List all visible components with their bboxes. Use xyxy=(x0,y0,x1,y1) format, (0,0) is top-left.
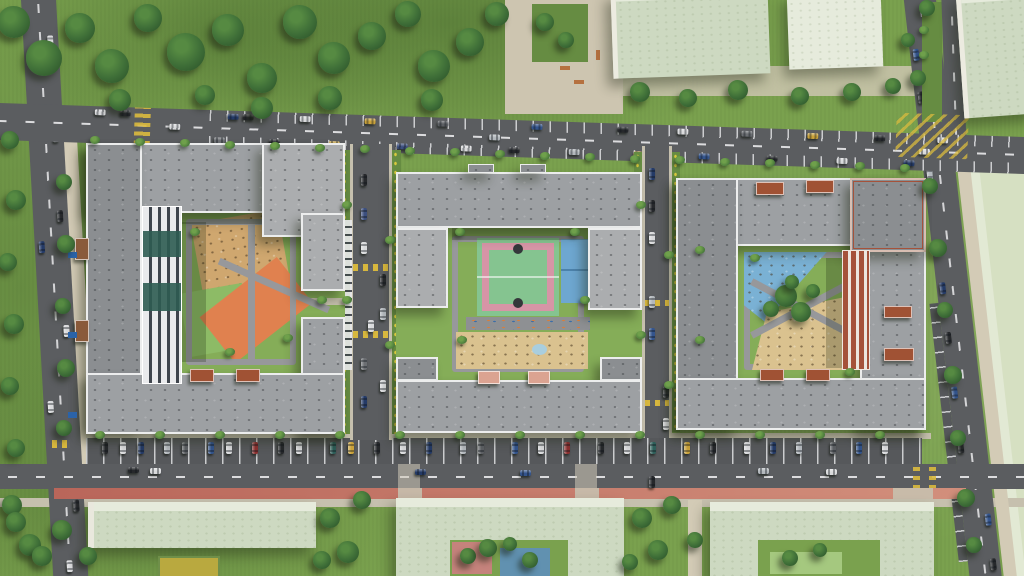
block-b-east-arm xyxy=(588,228,642,310)
car xyxy=(102,442,108,454)
entrance-canopy xyxy=(75,238,89,260)
bush xyxy=(540,152,550,160)
tree xyxy=(479,539,497,557)
tree xyxy=(6,190,26,210)
tree xyxy=(247,63,277,93)
car xyxy=(650,442,656,454)
block-b-roof-notch xyxy=(468,164,494,173)
car xyxy=(874,135,885,141)
recycling-bin xyxy=(68,332,77,338)
tree xyxy=(353,491,371,509)
car xyxy=(744,442,750,454)
car xyxy=(243,114,254,120)
teal-glass-panel xyxy=(143,283,181,311)
car xyxy=(663,418,669,430)
car xyxy=(208,442,214,454)
car xyxy=(228,114,239,120)
tree xyxy=(910,70,926,86)
recycling-bin xyxy=(68,252,77,258)
bush xyxy=(810,161,820,169)
tree xyxy=(663,496,681,514)
tree xyxy=(52,520,72,540)
car xyxy=(649,232,655,244)
car xyxy=(66,560,73,572)
tree xyxy=(6,512,26,532)
bush xyxy=(405,147,415,155)
car xyxy=(489,134,500,140)
car xyxy=(836,158,847,164)
tree xyxy=(0,253,17,271)
entrance-canopy xyxy=(760,369,784,381)
tree xyxy=(65,13,95,43)
tower-shadow xyxy=(180,222,206,362)
speed-bump xyxy=(353,264,389,271)
tree xyxy=(251,97,273,119)
roof-pergola xyxy=(884,348,914,361)
court-divider xyxy=(561,269,589,271)
tree xyxy=(632,508,652,528)
roof-pergola xyxy=(756,182,784,195)
car xyxy=(296,442,302,454)
bike-lane-crossing-gap xyxy=(893,488,933,499)
car xyxy=(361,396,367,408)
block-a-east-wing-upper xyxy=(301,213,345,291)
crosswalk-light xyxy=(575,464,597,489)
car xyxy=(951,386,958,399)
tree xyxy=(1,131,19,149)
basketball-hoop xyxy=(513,244,523,254)
car xyxy=(138,442,144,454)
car xyxy=(150,468,161,474)
tree xyxy=(791,302,811,322)
speed-bump xyxy=(52,440,70,448)
bench xyxy=(560,66,570,70)
tree xyxy=(950,430,966,446)
car xyxy=(380,308,386,320)
tree xyxy=(57,359,75,377)
tree xyxy=(622,554,638,570)
car xyxy=(538,442,544,454)
tree xyxy=(485,2,509,26)
sand-playground-b xyxy=(456,332,588,369)
car xyxy=(830,442,836,454)
tree xyxy=(320,508,340,528)
car xyxy=(684,442,690,454)
tree xyxy=(4,314,24,334)
tree xyxy=(728,80,748,100)
car xyxy=(649,476,655,488)
car xyxy=(226,442,232,454)
car xyxy=(990,558,997,571)
car xyxy=(330,442,336,454)
tree xyxy=(937,302,953,318)
block-c-south-wing xyxy=(676,378,926,430)
tree xyxy=(337,541,359,563)
car xyxy=(361,174,367,186)
block-a-south-wing xyxy=(86,373,345,434)
car xyxy=(741,131,752,137)
car xyxy=(348,442,354,454)
roof-edge xyxy=(710,502,934,511)
basketball-court xyxy=(477,238,559,316)
car xyxy=(677,128,688,134)
tree xyxy=(522,552,538,568)
neighbor-building-north-east xyxy=(956,0,1024,118)
tree xyxy=(56,174,72,190)
tree xyxy=(460,548,476,564)
tree xyxy=(79,547,97,565)
car xyxy=(624,442,630,454)
entrance-canopy xyxy=(190,369,214,382)
entrance-canopy xyxy=(478,371,500,384)
tree xyxy=(901,33,915,47)
roof-pergola xyxy=(806,180,834,193)
crosswalk-light xyxy=(398,464,420,489)
tree xyxy=(648,540,668,560)
speed-bump xyxy=(353,331,389,338)
tree xyxy=(283,5,317,39)
tree xyxy=(109,89,131,111)
plaza xyxy=(505,0,623,114)
tree xyxy=(813,543,827,557)
tree xyxy=(26,40,62,76)
car xyxy=(361,358,367,370)
car xyxy=(252,442,258,454)
entrance-canopy xyxy=(236,369,260,382)
car xyxy=(939,282,946,295)
bush xyxy=(135,138,145,146)
tree xyxy=(785,275,799,289)
car xyxy=(426,442,432,454)
car xyxy=(985,513,992,526)
tree xyxy=(313,551,331,569)
block-b-north-bar xyxy=(396,172,642,228)
car xyxy=(649,296,655,308)
car xyxy=(758,468,769,474)
car xyxy=(437,121,448,127)
car xyxy=(415,469,426,475)
tree xyxy=(763,301,779,317)
tree xyxy=(782,550,798,566)
courtyard-a-vertical-path xyxy=(248,219,255,365)
tree xyxy=(358,22,386,50)
car xyxy=(278,442,284,454)
tree xyxy=(679,89,697,107)
car xyxy=(710,442,716,454)
car xyxy=(509,147,520,153)
block-b-south-bar xyxy=(396,380,642,433)
tree xyxy=(318,42,350,74)
tree xyxy=(57,235,75,253)
block-b-southwest-corner xyxy=(396,357,438,381)
small-yellow-court xyxy=(158,556,220,576)
bush xyxy=(630,155,640,163)
block-c-northeast-tower xyxy=(850,178,926,252)
car xyxy=(649,200,655,212)
tree xyxy=(421,89,443,111)
car xyxy=(120,442,126,454)
crosswalk-yellow xyxy=(929,464,936,489)
car xyxy=(39,241,46,253)
speed-bump xyxy=(645,400,669,406)
tree xyxy=(957,489,975,507)
car xyxy=(617,126,628,132)
aerial-scene xyxy=(0,0,1024,576)
block-a-east-facade xyxy=(345,220,352,370)
tree xyxy=(456,28,484,56)
block-b-southeast-corner xyxy=(600,357,642,381)
bench xyxy=(574,80,584,84)
car xyxy=(400,442,406,454)
tree xyxy=(630,82,650,102)
car xyxy=(520,470,531,476)
neighbor-building-north-2 xyxy=(787,0,884,70)
car xyxy=(380,274,386,286)
car xyxy=(649,328,655,340)
teal-glass-panel xyxy=(143,231,181,257)
tree xyxy=(929,239,947,257)
car xyxy=(73,500,80,512)
tree xyxy=(806,284,820,298)
crosswalk-yellow xyxy=(913,464,920,489)
tree xyxy=(885,78,901,94)
inner-court-green xyxy=(770,552,842,574)
car xyxy=(649,168,655,180)
bush xyxy=(720,158,730,166)
car xyxy=(478,442,484,454)
car xyxy=(699,153,710,159)
tree xyxy=(134,4,162,32)
car xyxy=(368,320,374,332)
lane-dashes xyxy=(0,476,1024,478)
tree xyxy=(212,14,244,46)
tree xyxy=(55,298,71,314)
bush xyxy=(900,164,910,172)
car xyxy=(564,442,570,454)
car xyxy=(164,442,170,454)
roof-edge xyxy=(961,0,1024,3)
tree xyxy=(195,85,215,105)
tree xyxy=(687,532,703,548)
car xyxy=(807,133,818,139)
tree xyxy=(843,83,861,101)
car xyxy=(361,242,367,254)
car xyxy=(47,401,54,413)
south-street-parking-row xyxy=(86,438,922,465)
tree xyxy=(0,6,30,38)
block-b-west-arm xyxy=(396,228,448,308)
car xyxy=(531,124,542,130)
car xyxy=(374,442,380,454)
median-green xyxy=(922,2,942,122)
car xyxy=(945,332,952,345)
tree xyxy=(1,377,19,395)
car xyxy=(826,469,837,475)
tree xyxy=(95,49,129,83)
car xyxy=(182,442,188,454)
neighbor-building-south-long xyxy=(88,502,316,548)
tree xyxy=(395,1,421,27)
car xyxy=(57,210,64,222)
car xyxy=(128,467,139,473)
tree xyxy=(167,33,205,71)
block-c-brick-tower-facade xyxy=(842,250,870,370)
car xyxy=(770,442,776,454)
car xyxy=(598,442,604,454)
recycling-bin xyxy=(68,412,77,418)
roof-pergola xyxy=(884,306,912,318)
tree xyxy=(503,537,517,551)
tree xyxy=(966,537,982,553)
bench xyxy=(596,50,600,60)
basketball-hoop xyxy=(513,298,523,308)
car xyxy=(300,116,311,122)
junction-yellow-hatch xyxy=(895,113,968,159)
tree xyxy=(922,178,938,194)
car xyxy=(569,149,580,155)
car xyxy=(364,118,375,124)
play-dome xyxy=(532,344,547,355)
fitness-strip xyxy=(466,317,590,330)
car xyxy=(882,442,888,454)
entrance-canopy xyxy=(75,320,89,342)
bush xyxy=(315,144,325,152)
entrance-canopy xyxy=(806,369,830,381)
tree xyxy=(558,32,574,48)
car xyxy=(461,145,472,151)
tree xyxy=(418,50,450,82)
neighbor-building-south-east xyxy=(710,502,934,576)
car xyxy=(856,442,862,454)
internal-street-east xyxy=(642,146,672,438)
tree xyxy=(32,546,52,566)
internal-street-west xyxy=(350,144,392,440)
tree xyxy=(791,87,809,105)
entrance-canopy xyxy=(528,371,550,384)
roof-edge xyxy=(396,498,624,507)
car xyxy=(796,442,802,454)
car xyxy=(380,380,386,392)
tree xyxy=(536,13,554,31)
car xyxy=(460,442,466,454)
tree xyxy=(919,0,935,16)
tree xyxy=(318,86,342,110)
block-b-roof-notch xyxy=(520,164,546,173)
blue-sports-court xyxy=(561,239,589,303)
car xyxy=(512,442,518,454)
tree xyxy=(7,439,25,457)
tree xyxy=(56,420,72,436)
car xyxy=(169,124,180,130)
block-a-glass-tower-facade xyxy=(142,206,182,384)
court-midline xyxy=(477,276,559,278)
car xyxy=(95,109,106,115)
tree xyxy=(944,366,962,384)
roof-edge xyxy=(616,0,768,2)
bush xyxy=(225,141,235,149)
car xyxy=(361,208,367,220)
neighbor-building-north-1 xyxy=(611,0,771,79)
roof-edge xyxy=(94,502,316,511)
